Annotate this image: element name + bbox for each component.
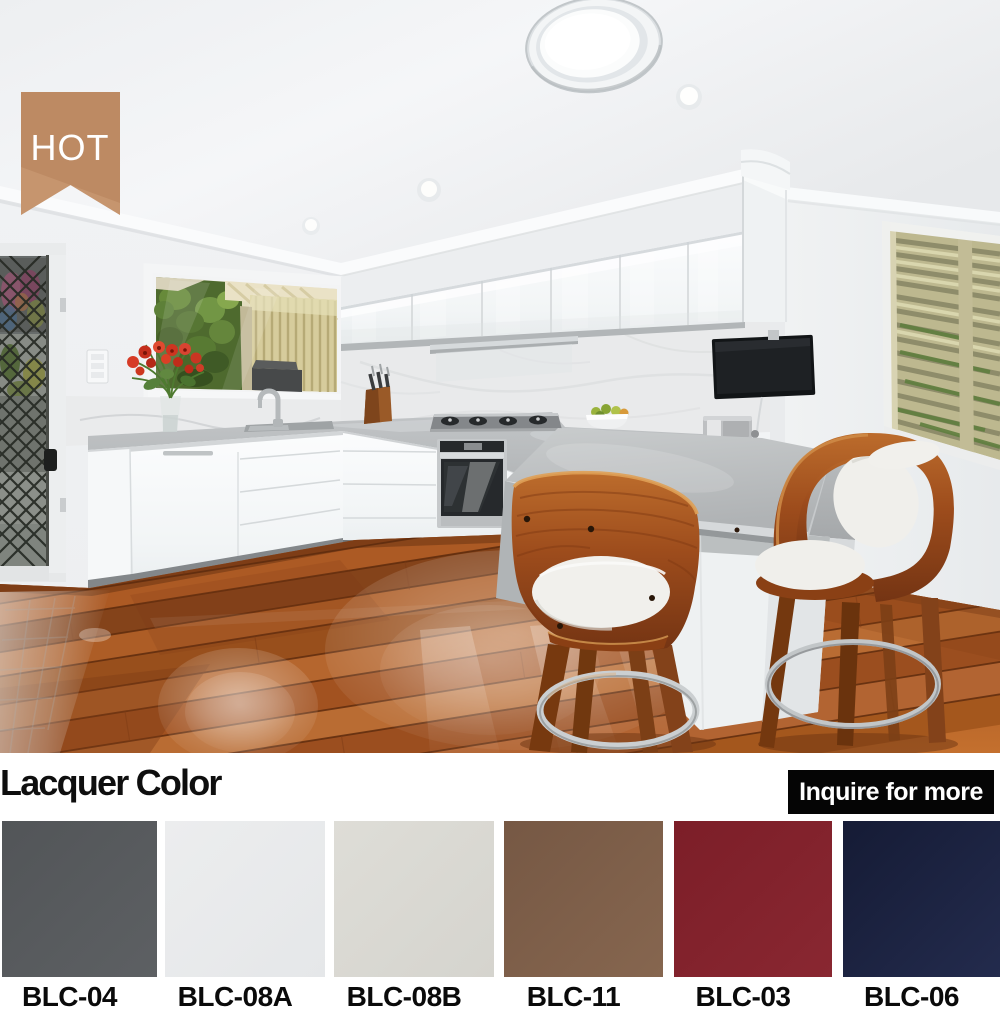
svg-text:HOT: HOT bbox=[31, 127, 110, 168]
